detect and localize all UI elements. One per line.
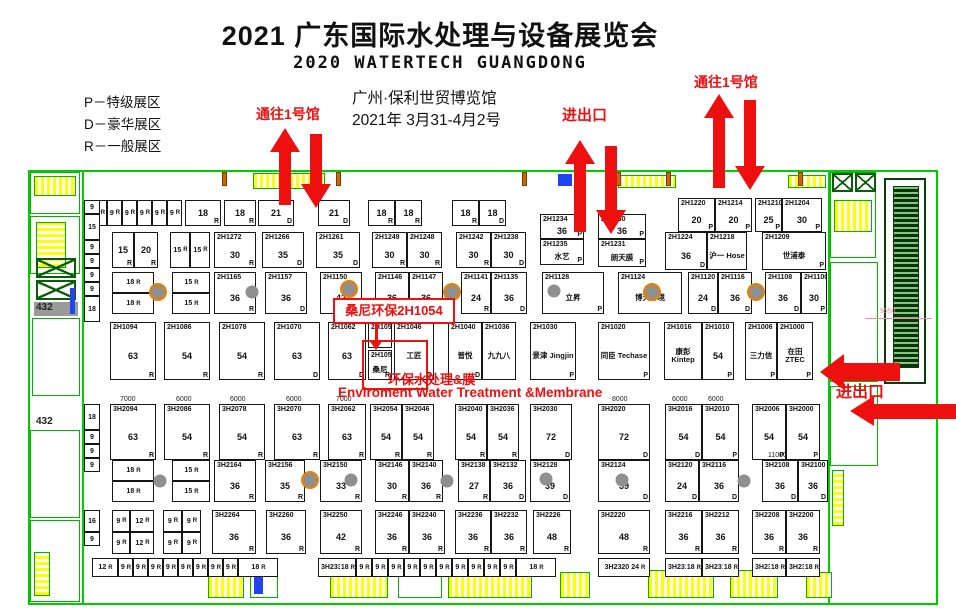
right-stairs-hatch-2 bbox=[832, 470, 844, 526]
booth-2H1070[interactable]: 2H107063D bbox=[274, 322, 320, 380]
booth-18[interactable]: 18R bbox=[395, 200, 422, 226]
pillar-icon bbox=[152, 286, 165, 299]
dimension-label: 6000 bbox=[176, 396, 192, 403]
bottom-wall-detail-1 bbox=[254, 576, 263, 594]
booth-15[interactable]: 15R bbox=[190, 232, 210, 268]
booth-3H2062[interactable]: 3H206263R bbox=[328, 404, 366, 460]
booth-3H2036[interactable]: 3H203654R bbox=[487, 404, 519, 460]
booth-2H1094[interactable]: 2H109463R bbox=[110, 322, 156, 380]
booth-2H1020[interactable]: 2H1020同臣 TechaseP bbox=[598, 322, 650, 380]
booth-3H2226[interactable]: 3H222648R bbox=[533, 510, 571, 554]
booth-20[interactable]: 20R bbox=[134, 232, 158, 268]
dimension-line bbox=[866, 318, 932, 319]
booth-3H2330[interactable]: 3H233018R bbox=[318, 558, 356, 577]
booth-2H1010[interactable]: 2H101054P bbox=[702, 322, 734, 380]
booth-3H2300[interactable]: 3H230018R bbox=[786, 558, 820, 577]
booth-2H1078[interactable]: 2H107854R bbox=[219, 322, 265, 380]
booth-15[interactable]: 15R bbox=[172, 293, 210, 314]
booth-12[interactable]: 12R bbox=[130, 510, 154, 532]
booth-9[interactable]: 9R bbox=[163, 510, 182, 532]
dimension-label: 7000 bbox=[120, 396, 136, 403]
booth-3H2146[interactable]: 3H214630R bbox=[375, 460, 409, 502]
booth-15[interactable]: 15R bbox=[172, 481, 210, 502]
arrow-down-icon bbox=[735, 100, 765, 190]
booth-9[interactable]: 9 bbox=[84, 240, 100, 254]
booth-3H2086[interactable]: 3H208654R bbox=[164, 404, 210, 460]
booth-18[interactable]: 18R bbox=[238, 558, 278, 577]
dimension-label: 432 bbox=[36, 416, 53, 427]
pillar-icon bbox=[304, 474, 317, 487]
dimension-label: 6000 bbox=[286, 396, 302, 403]
booth-2H1272[interactable]: 2H127230R bbox=[214, 232, 256, 268]
booth-9[interactable]: 9R bbox=[404, 558, 420, 577]
booth-3H2312[interactable]: 3H231218R bbox=[702, 558, 739, 577]
booth-18[interactable]: 18R bbox=[112, 293, 154, 314]
booth-18[interactable]: 18R bbox=[516, 558, 556, 577]
booth-9[interactable]: 9R bbox=[356, 558, 372, 577]
booth-2H1209[interactable]: 2H1209世浦泰P bbox=[762, 232, 826, 270]
booth-3H2010[interactable]: 3H201054P bbox=[702, 404, 739, 460]
booth-3H2100[interactable]: 3H210036D bbox=[798, 460, 828, 502]
booth-9[interactable]: 9R bbox=[112, 532, 130, 554]
booth-3H2240[interactable]: 3H224036R bbox=[409, 510, 445, 554]
booth-2H1266[interactable]: 2H126635D bbox=[262, 232, 304, 268]
dimension-label: 6000 bbox=[230, 396, 246, 403]
elevator-box-4 bbox=[855, 173, 876, 192]
booth-3H2316[interactable]: 3H231618R bbox=[665, 558, 702, 577]
arrow-down-icon bbox=[596, 146, 626, 234]
booth-9[interactable]: 9R bbox=[182, 510, 201, 532]
booth-9[interactable]: 9 bbox=[84, 444, 100, 458]
pillar-icon bbox=[548, 285, 561, 298]
booth-2H1249[interactable]: 2H124930R bbox=[372, 232, 407, 268]
booth-12[interactable]: 12R bbox=[130, 532, 154, 554]
callout-pointer-arrow-icon bbox=[369, 340, 383, 350]
dimension-label: 9550 bbox=[880, 308, 896, 315]
booth-3H2116[interactable]: 3H211636D bbox=[699, 460, 739, 502]
booth-3H2200[interactable]: 3H220036R bbox=[786, 510, 820, 554]
booth-9[interactable]: 9 bbox=[84, 200, 100, 214]
booth-15[interactable]: 15R bbox=[172, 272, 210, 293]
right-stairs-hatch bbox=[834, 200, 872, 232]
booth-9[interactable]: 9R bbox=[133, 558, 148, 577]
booth-15[interactable]: 15 bbox=[84, 214, 100, 240]
booth-2H1235[interactable]: 2H1235水艺P bbox=[540, 239, 584, 265]
booth-9[interactable]: 9R bbox=[468, 558, 484, 577]
booth-18[interactable]: 18R bbox=[112, 272, 154, 293]
booth-3H2108[interactable]: 3H210836D bbox=[762, 460, 798, 502]
booth-9[interactable]: 9R bbox=[163, 532, 182, 554]
booth-9[interactable]: 9R bbox=[178, 558, 193, 577]
booth-2H1248[interactable]: 2H124830R bbox=[407, 232, 442, 268]
booth-9[interactable]: 9R bbox=[182, 532, 201, 554]
door-post bbox=[522, 172, 527, 186]
booth-2H1157[interactable]: 2H115736D bbox=[265, 272, 307, 314]
booth-9[interactable]: 9R bbox=[388, 558, 404, 577]
booth-3H2212[interactable]: 3H221236R bbox=[702, 510, 739, 554]
booth-3H2264[interactable]: 3H226436R bbox=[212, 510, 256, 554]
booth-2H1220[interactable]: 2H122020P bbox=[678, 198, 715, 232]
booth-18[interactable]: 18 bbox=[84, 404, 100, 430]
pillar-icon bbox=[540, 473, 553, 486]
door-post bbox=[798, 172, 803, 186]
booth-3H2156[interactable]: 3H215635R bbox=[265, 460, 305, 502]
booth-2H1224[interactable]: 2H122436D bbox=[665, 232, 707, 270]
booth-9[interactable]: 9R bbox=[137, 200, 152, 226]
booth-9[interactable]: 9R bbox=[167, 200, 182, 226]
dimension-label: 11000 bbox=[768, 452, 787, 459]
booth-2H1062[interactable]: 2H106263D bbox=[328, 322, 366, 380]
booth-3H2236[interactable]: 3H223636R bbox=[455, 510, 491, 554]
booth-2H1006[interactable]: 2H1006三力信P bbox=[745, 322, 777, 380]
booth-18[interactable]: 18R bbox=[112, 481, 154, 502]
booth-2H1116[interactable]: 2H111636D bbox=[718, 272, 752, 314]
booth-16[interactable]: 16 bbox=[84, 510, 100, 532]
booth-2H1214[interactable]: 2H121420P bbox=[715, 198, 752, 232]
booth-12[interactable]: 12R bbox=[92, 558, 118, 577]
booth-9[interactable]: 9 bbox=[84, 254, 100, 268]
dimension-label: 432 bbox=[36, 302, 53, 313]
booth-3H2070[interactable]: 3H207063R bbox=[274, 404, 320, 460]
booth-3H2164[interactable]: 3H216436R bbox=[214, 460, 256, 502]
booth-3H2260[interactable]: 3H226036R bbox=[266, 510, 306, 554]
booth-18[interactable]: 18R bbox=[185, 200, 221, 226]
booth-3H2094[interactable]: 3H209463R bbox=[110, 404, 156, 460]
booth-9[interactable]: 9R bbox=[208, 558, 223, 577]
booth-3H2132[interactable]: 3H213236D bbox=[490, 460, 526, 502]
door-post bbox=[336, 172, 341, 186]
dimension-label: 6000 bbox=[708, 396, 724, 403]
booth-3H2020[interactable]: 3H202072D bbox=[598, 404, 650, 460]
booth-3H2046[interactable]: 3H204654R bbox=[402, 404, 434, 460]
left-wall-detail bbox=[70, 288, 75, 314]
booth-3H2246[interactable]: 3H224636R bbox=[375, 510, 409, 554]
elevator-box-3 bbox=[832, 173, 853, 192]
booth-9[interactable]: 9R bbox=[152, 200, 167, 226]
booth-3H2016[interactable]: 3H201654D bbox=[665, 404, 702, 460]
booth-2H1108[interactable]: 2H110836D bbox=[765, 272, 801, 314]
pillar-icon bbox=[750, 286, 763, 299]
pillar-icon bbox=[738, 475, 751, 488]
booth-3H2250[interactable]: 3H225042R bbox=[320, 510, 362, 554]
booth-9[interactable]: 9R bbox=[148, 558, 163, 577]
left-room-4 bbox=[30, 430, 80, 518]
booth-2H1242[interactable]: 2H124230R bbox=[456, 232, 491, 268]
booth-9[interactable]: 9 bbox=[84, 532, 100, 546]
booth-18[interactable]: 18R bbox=[224, 200, 256, 226]
booth-9[interactable]: 9R bbox=[163, 558, 178, 577]
floor-plan: 9R9R9R9R9R9R18R18R21D21D18R18R18R18D2H12… bbox=[0, 0, 956, 614]
booth-9[interactable]: 9R bbox=[484, 558, 500, 577]
booth-2H1000[interactable]: 2H1000在田 ZTECP bbox=[777, 322, 813, 380]
pillar-icon bbox=[246, 286, 259, 299]
booth-9[interactable]: 9R bbox=[112, 510, 130, 532]
arrow-up-icon bbox=[270, 128, 300, 205]
highlight-text-en: Enviroment Water Treatment &Membrane bbox=[338, 385, 602, 400]
pillar-icon bbox=[154, 475, 167, 488]
booth-2H1141[interactable]: 2H114124R bbox=[461, 272, 491, 314]
highlight-callout-box: 桑尼环保2H1054 bbox=[333, 298, 455, 324]
booth-2H1100[interactable]: 2H110030P bbox=[801, 272, 827, 314]
pillar-icon bbox=[441, 475, 454, 488]
top-stairs-hatch-3 bbox=[788, 175, 826, 188]
booth-2H1238[interactable]: 2H123830D bbox=[491, 232, 526, 268]
booth-15[interactable]: 15R bbox=[172, 460, 210, 481]
booth-3H2030[interactable]: 3H203072D bbox=[530, 404, 572, 460]
booth-3H2054[interactable]: 3H205454R bbox=[370, 404, 402, 460]
left-room-3 bbox=[32, 318, 80, 396]
booth-9[interactable]: 9R bbox=[372, 558, 388, 577]
booth-3H2220[interactable]: 3H222048R bbox=[598, 510, 650, 554]
booth-2H1218[interactable]: 2H1218沪一 Hose bbox=[707, 232, 747, 270]
booth-9[interactable]: 9R bbox=[223, 558, 238, 577]
booth-3H2040[interactable]: 3H204054R bbox=[455, 404, 487, 460]
booth-2H1204[interactable]: 2H120430P bbox=[782, 198, 822, 232]
booth-18[interactable]: 18R bbox=[112, 460, 154, 481]
arrow-down-icon bbox=[301, 134, 331, 208]
left-stairs-hatch-3 bbox=[34, 552, 50, 596]
booth-18[interactable]: 18 bbox=[84, 296, 100, 322]
booth-2H1210[interactable]: 2H121025P bbox=[755, 198, 782, 232]
door-post bbox=[666, 172, 671, 186]
booth-15[interactable]: 15R bbox=[170, 232, 190, 268]
booth-9[interactable]: 9R bbox=[193, 558, 208, 577]
pillar-icon bbox=[446, 286, 459, 299]
elevator-box-1 bbox=[36, 258, 76, 278]
booth-3H2320[interactable]: 3H232024R bbox=[598, 558, 650, 577]
booth-15[interactable]: 15R bbox=[112, 232, 134, 268]
booth-2H1135[interactable]: 2H113536D bbox=[491, 272, 527, 314]
booth-9[interactable]: 9R bbox=[500, 558, 516, 577]
booth-2H1016[interactable]: 2H1016康彭 Kintep bbox=[664, 322, 702, 380]
callout-pointer-line bbox=[375, 322, 378, 342]
booth-3H2208[interactable]: 3H220836R bbox=[752, 510, 786, 554]
booth-2H1086[interactable]: 2H108654R bbox=[164, 322, 210, 380]
dimension-label: 6000 bbox=[672, 396, 688, 403]
booth-9[interactable]: 9R bbox=[107, 200, 122, 226]
booth-3H2078[interactable]: 3H207854R bbox=[219, 404, 265, 460]
booth-9[interactable]: 9R bbox=[420, 558, 436, 577]
bottom-facility-hatch-4 bbox=[560, 572, 590, 598]
booth-18[interactable]: 18D bbox=[479, 200, 506, 226]
pillar-icon bbox=[345, 474, 358, 487]
pillar-icon bbox=[646, 286, 659, 299]
booth-2H1030[interactable]: 2H1030景津 JingjinP bbox=[530, 322, 576, 380]
door-post bbox=[222, 172, 227, 186]
dimension-label: 8000 bbox=[612, 396, 628, 403]
booth-9[interactable]: 9 bbox=[84, 430, 100, 444]
booth-9[interactable]: 9R bbox=[436, 558, 452, 577]
arrow-up-icon bbox=[565, 140, 595, 232]
booth-3H2120[interactable]: 3H212024D bbox=[665, 460, 699, 502]
escalator-steps bbox=[893, 186, 919, 368]
arrow-up-icon bbox=[704, 94, 734, 188]
booth-3H2140[interactable]: 3H214036R bbox=[409, 460, 443, 502]
entrance-label-right: 进出口 bbox=[836, 378, 884, 402]
left-stairs-hatch-1 bbox=[34, 176, 76, 196]
pillar-icon bbox=[343, 283, 356, 296]
booth-3H2308[interactable]: 3H230818R bbox=[752, 558, 786, 577]
booth-9[interactable]: 9R bbox=[122, 200, 137, 226]
pillar-icon bbox=[616, 474, 629, 487]
booth-2H1261[interactable]: 2H126135D bbox=[316, 232, 360, 268]
booth-2H1036[interactable]: 2H1036九九八 bbox=[482, 322, 516, 380]
booth-2H1231[interactable]: 2H1231朗天膜P bbox=[598, 239, 646, 267]
booth-18[interactable]: 18R bbox=[368, 200, 395, 226]
booth-18[interactable]: 18R bbox=[452, 200, 479, 226]
booth-9[interactable]: 9 bbox=[84, 268, 100, 282]
booth-9[interactable]: 9R bbox=[452, 558, 468, 577]
booth-9[interactable]: 9 bbox=[84, 282, 100, 296]
booth-9[interactable]: 9R bbox=[118, 558, 133, 577]
booth-3H2000[interactable]: 3H200054P bbox=[786, 404, 820, 460]
booth-3H2232[interactable]: 3H223236R bbox=[491, 510, 527, 554]
booth-3H2138[interactable]: 3H213827R bbox=[458, 460, 490, 502]
booth-3H2216[interactable]: 3H221636R bbox=[665, 510, 702, 554]
booth-9[interactable]: 9 bbox=[84, 458, 100, 472]
booth-2H1120[interactable]: 2H112024D bbox=[688, 272, 718, 314]
